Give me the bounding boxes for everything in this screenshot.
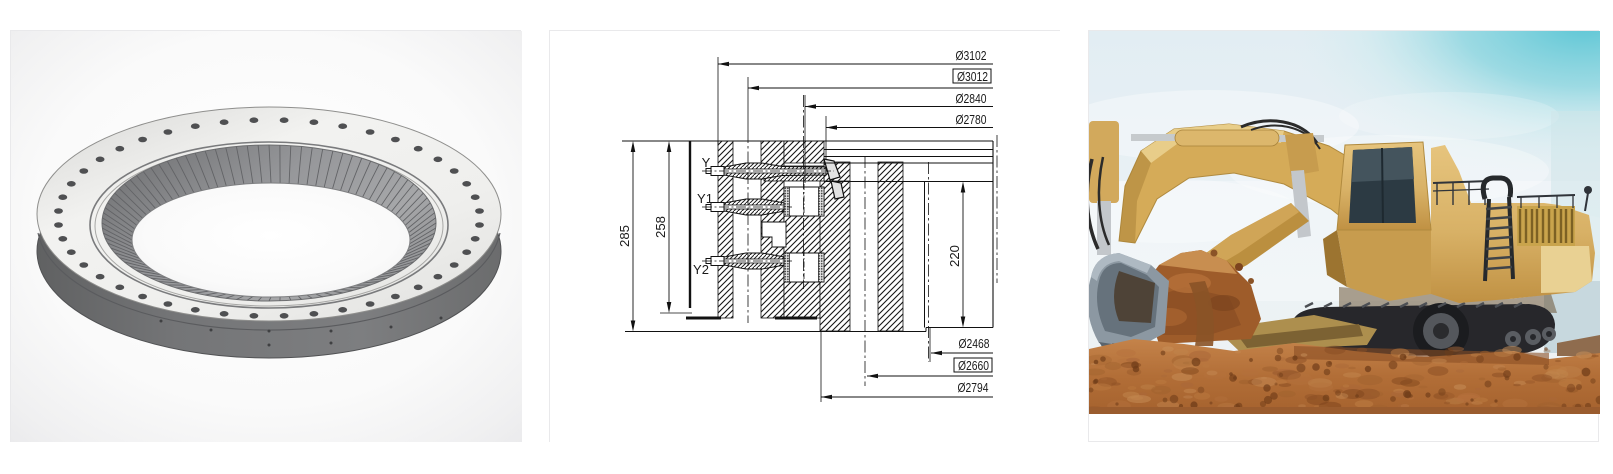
svg-text:Ø3012: Ø3012 <box>957 69 988 84</box>
svg-text:285: 285 <box>617 225 632 247</box>
svg-text:Ø3102: Ø3102 <box>956 48 987 63</box>
svg-text:220: 220 <box>947 245 962 267</box>
svg-text:Ø2780: Ø2780 <box>956 112 987 127</box>
svg-text:Ø2794: Ø2794 <box>958 380 989 395</box>
svg-text:Y: Y <box>702 155 711 170</box>
svg-text:Y1: Y1 <box>697 191 713 206</box>
svg-text:Ø2660: Ø2660 <box>958 358 989 373</box>
svg-text:258: 258 <box>653 216 668 238</box>
svg-text:Y2: Y2 <box>693 262 709 277</box>
svg-text:Ø2840: Ø2840 <box>956 91 987 106</box>
svg-text:Ø2468: Ø2468 <box>959 336 990 351</box>
